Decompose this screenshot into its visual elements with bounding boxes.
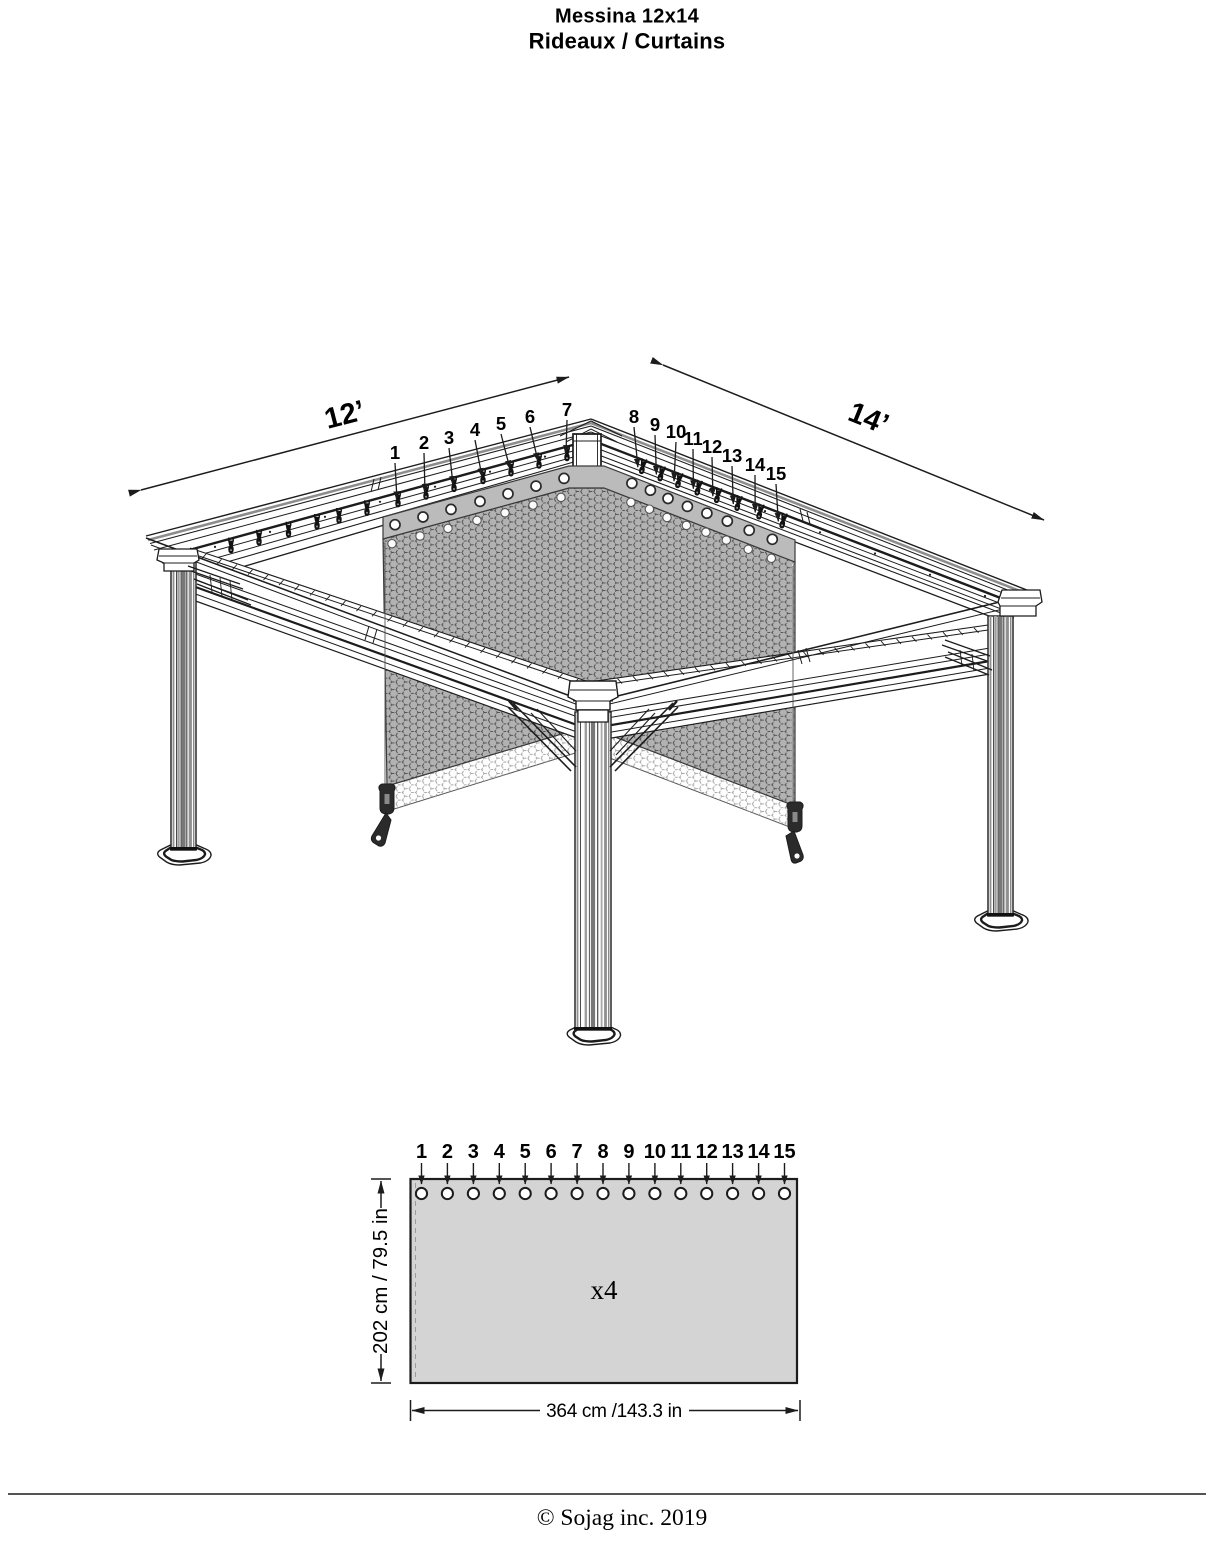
svg-text:3: 3 bbox=[444, 427, 454, 448]
svg-text:14: 14 bbox=[745, 454, 766, 475]
svg-text:8: 8 bbox=[629, 406, 639, 427]
svg-text:14: 14 bbox=[747, 1141, 770, 1163]
svg-text:4: 4 bbox=[494, 1141, 506, 1163]
svg-text:1: 1 bbox=[416, 1141, 427, 1163]
svg-text:9: 9 bbox=[623, 1141, 634, 1163]
svg-text:7: 7 bbox=[562, 399, 572, 420]
svg-text:x4: x4 bbox=[591, 1275, 619, 1305]
svg-text:13: 13 bbox=[722, 1141, 744, 1163]
svg-text:Rideaux / Curtains: Rideaux / Curtains bbox=[529, 29, 726, 54]
svg-text:5: 5 bbox=[496, 413, 506, 434]
svg-text:14’: 14’ bbox=[844, 396, 893, 441]
svg-text:4: 4 bbox=[470, 419, 481, 440]
svg-text:11: 11 bbox=[683, 428, 703, 449]
svg-text:202 cm / 79.5 in: 202 cm / 79.5 in bbox=[369, 1208, 392, 1354]
svg-text:15: 15 bbox=[773, 1141, 795, 1163]
svg-text:8: 8 bbox=[597, 1141, 608, 1163]
svg-text:5: 5 bbox=[520, 1141, 531, 1163]
svg-text:3: 3 bbox=[468, 1141, 479, 1163]
svg-text:7: 7 bbox=[572, 1141, 583, 1163]
svg-text:© Sojag inc. 2019: © Sojag inc. 2019 bbox=[537, 1505, 708, 1531]
svg-text:6: 6 bbox=[546, 1141, 557, 1163]
svg-text:15: 15 bbox=[766, 463, 787, 484]
svg-text:12’: 12’ bbox=[321, 395, 368, 436]
svg-text:2: 2 bbox=[442, 1141, 453, 1163]
svg-text:13: 13 bbox=[722, 445, 743, 466]
svg-text:1: 1 bbox=[390, 442, 400, 463]
svg-text:2: 2 bbox=[419, 432, 429, 453]
svg-text:12: 12 bbox=[702, 436, 723, 457]
svg-text:Messina 12x14: Messina 12x14 bbox=[555, 6, 700, 28]
svg-text:12: 12 bbox=[696, 1141, 718, 1163]
svg-text:10: 10 bbox=[644, 1141, 666, 1163]
svg-text:364 cm /143.3 in: 364 cm /143.3 in bbox=[546, 1401, 682, 1422]
svg-text:6: 6 bbox=[525, 406, 535, 427]
svg-text:11: 11 bbox=[670, 1141, 691, 1163]
svg-text:9: 9 bbox=[650, 414, 660, 435]
